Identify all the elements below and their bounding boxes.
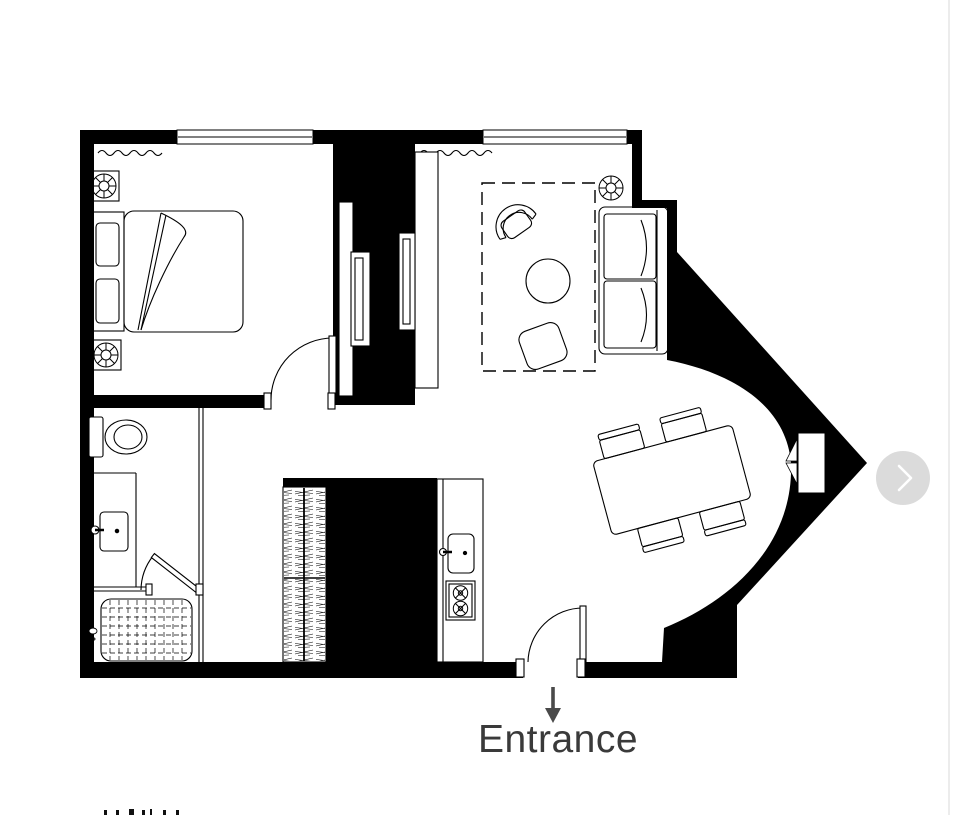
wardrobe-icon (283, 487, 326, 662)
dining-chair-icon (699, 501, 746, 536)
bathroom (87, 408, 203, 662)
bedroom-door (264, 336, 336, 409)
clipped-text-fragments (104, 809, 179, 815)
door-jamb (516, 659, 524, 677)
wall-tv-icon (399, 233, 415, 330)
dining-area (586, 401, 758, 560)
chevron-right-icon (876, 451, 930, 505)
entrance (516, 606, 586, 723)
plant-icon (599, 176, 623, 200)
curtain-wave-icon (98, 151, 162, 156)
plant-icon (94, 343, 118, 367)
bedroom (89, 151, 370, 410)
page-edge-line (948, 0, 950, 815)
entrance-label: Entrance (448, 718, 668, 762)
tv-console (415, 152, 438, 388)
dining-chair-icon (598, 424, 645, 459)
carousel-next-button[interactable] (876, 451, 930, 505)
bed-icon (93, 211, 243, 332)
pillow-icon (96, 279, 119, 323)
floor-plan-drawing (0, 0, 955, 815)
dining-chair-icon (637, 518, 684, 553)
wall-tv-icon (351, 252, 370, 346)
door-jamb (146, 584, 152, 595)
plant-icon (92, 174, 116, 198)
living-room-window (483, 130, 627, 144)
door-jamb (264, 393, 271, 409)
dining-table-icon (593, 425, 752, 536)
stove-icon (446, 581, 475, 620)
living-room (399, 151, 668, 389)
sofa-icon (599, 207, 668, 354)
kitchen-wall-mass (325, 478, 437, 678)
bathroom-door (141, 554, 203, 595)
bedroom-window (177, 130, 313, 144)
bedroom-wall (80, 395, 270, 408)
coffee-table-icon (526, 259, 570, 303)
armchair-icon (487, 196, 540, 245)
floor-plan-image: Entrance (0, 0, 955, 815)
dining-chair-icon (660, 407, 707, 442)
shower-icon (87, 599, 192, 661)
rug (482, 183, 595, 371)
ottoman-icon (516, 320, 569, 372)
pillow-icon (96, 223, 119, 266)
door-jamb (328, 393, 335, 409)
door-jamb (196, 584, 203, 595)
door-jamb (577, 659, 585, 677)
toilet-icon (89, 417, 147, 457)
vanity-sink-icon (91, 473, 136, 587)
